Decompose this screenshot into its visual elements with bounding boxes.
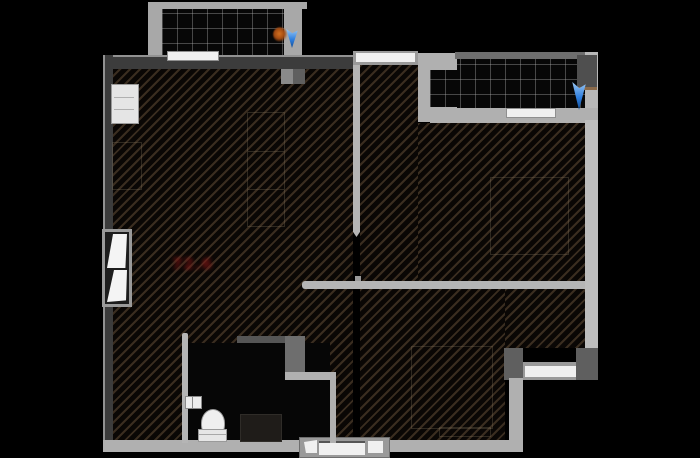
window-balcony-left-door	[167, 51, 219, 61]
radiator-outline	[112, 142, 142, 190]
counter-divider	[248, 189, 284, 190]
bathroom-wall-mid	[285, 372, 336, 380]
bed-outline-bottom-right-ext	[439, 427, 491, 437]
bathroom-duct	[285, 336, 305, 372]
balcony-top-left-wall-left	[148, 2, 162, 62]
shower-tray	[240, 414, 282, 442]
appliance-line	[114, 109, 134, 110]
bathroom-wall-left	[182, 333, 188, 443]
wall-interior-horizontal	[302, 281, 585, 289]
bed-outline-bottom-right	[411, 346, 493, 429]
notch-pier-right	[576, 348, 598, 380]
toilet-base	[198, 429, 227, 442]
wall-right-exterior	[585, 120, 598, 352]
floor-plan: 72.6	[0, 0, 700, 458]
floor-hall-strip	[360, 65, 418, 281]
kitchen-counter-outline	[247, 112, 285, 227]
balcony-tr-ac-unit	[577, 55, 597, 90]
kitchen-appliance	[111, 84, 139, 124]
notch-pier-left	[504, 348, 523, 380]
fixture-divider	[192, 397, 193, 408]
bathroom-wall-right	[330, 378, 336, 443]
entrance-door-leaf	[319, 441, 365, 455]
entrance-sidelight-right	[368, 441, 383, 453]
notch-window-glass	[525, 366, 578, 377]
appliance-line	[114, 97, 134, 98]
floor-bedroom-bottom-right-ext	[505, 289, 585, 348]
bed-outline-top-right	[490, 177, 569, 255]
area-label: 72.6	[172, 255, 216, 275]
window-top-glass	[356, 53, 415, 62]
window-balcony-right-door	[506, 108, 556, 118]
bathroom-wall-top	[237, 336, 285, 343]
wall-interior-vertical	[353, 65, 360, 237]
toilet-base-line	[199, 434, 226, 435]
bathroom-wall-fixture	[185, 396, 202, 409]
entrance-sidelight-left	[304, 440, 317, 453]
balcony-tr-bracket-top	[418, 53, 457, 70]
orange-dot-marker	[273, 27, 287, 42]
wall-top-left-section	[103, 55, 359, 69]
balcony-tr-wall-top	[455, 52, 587, 59]
counter-divider	[248, 151, 284, 152]
